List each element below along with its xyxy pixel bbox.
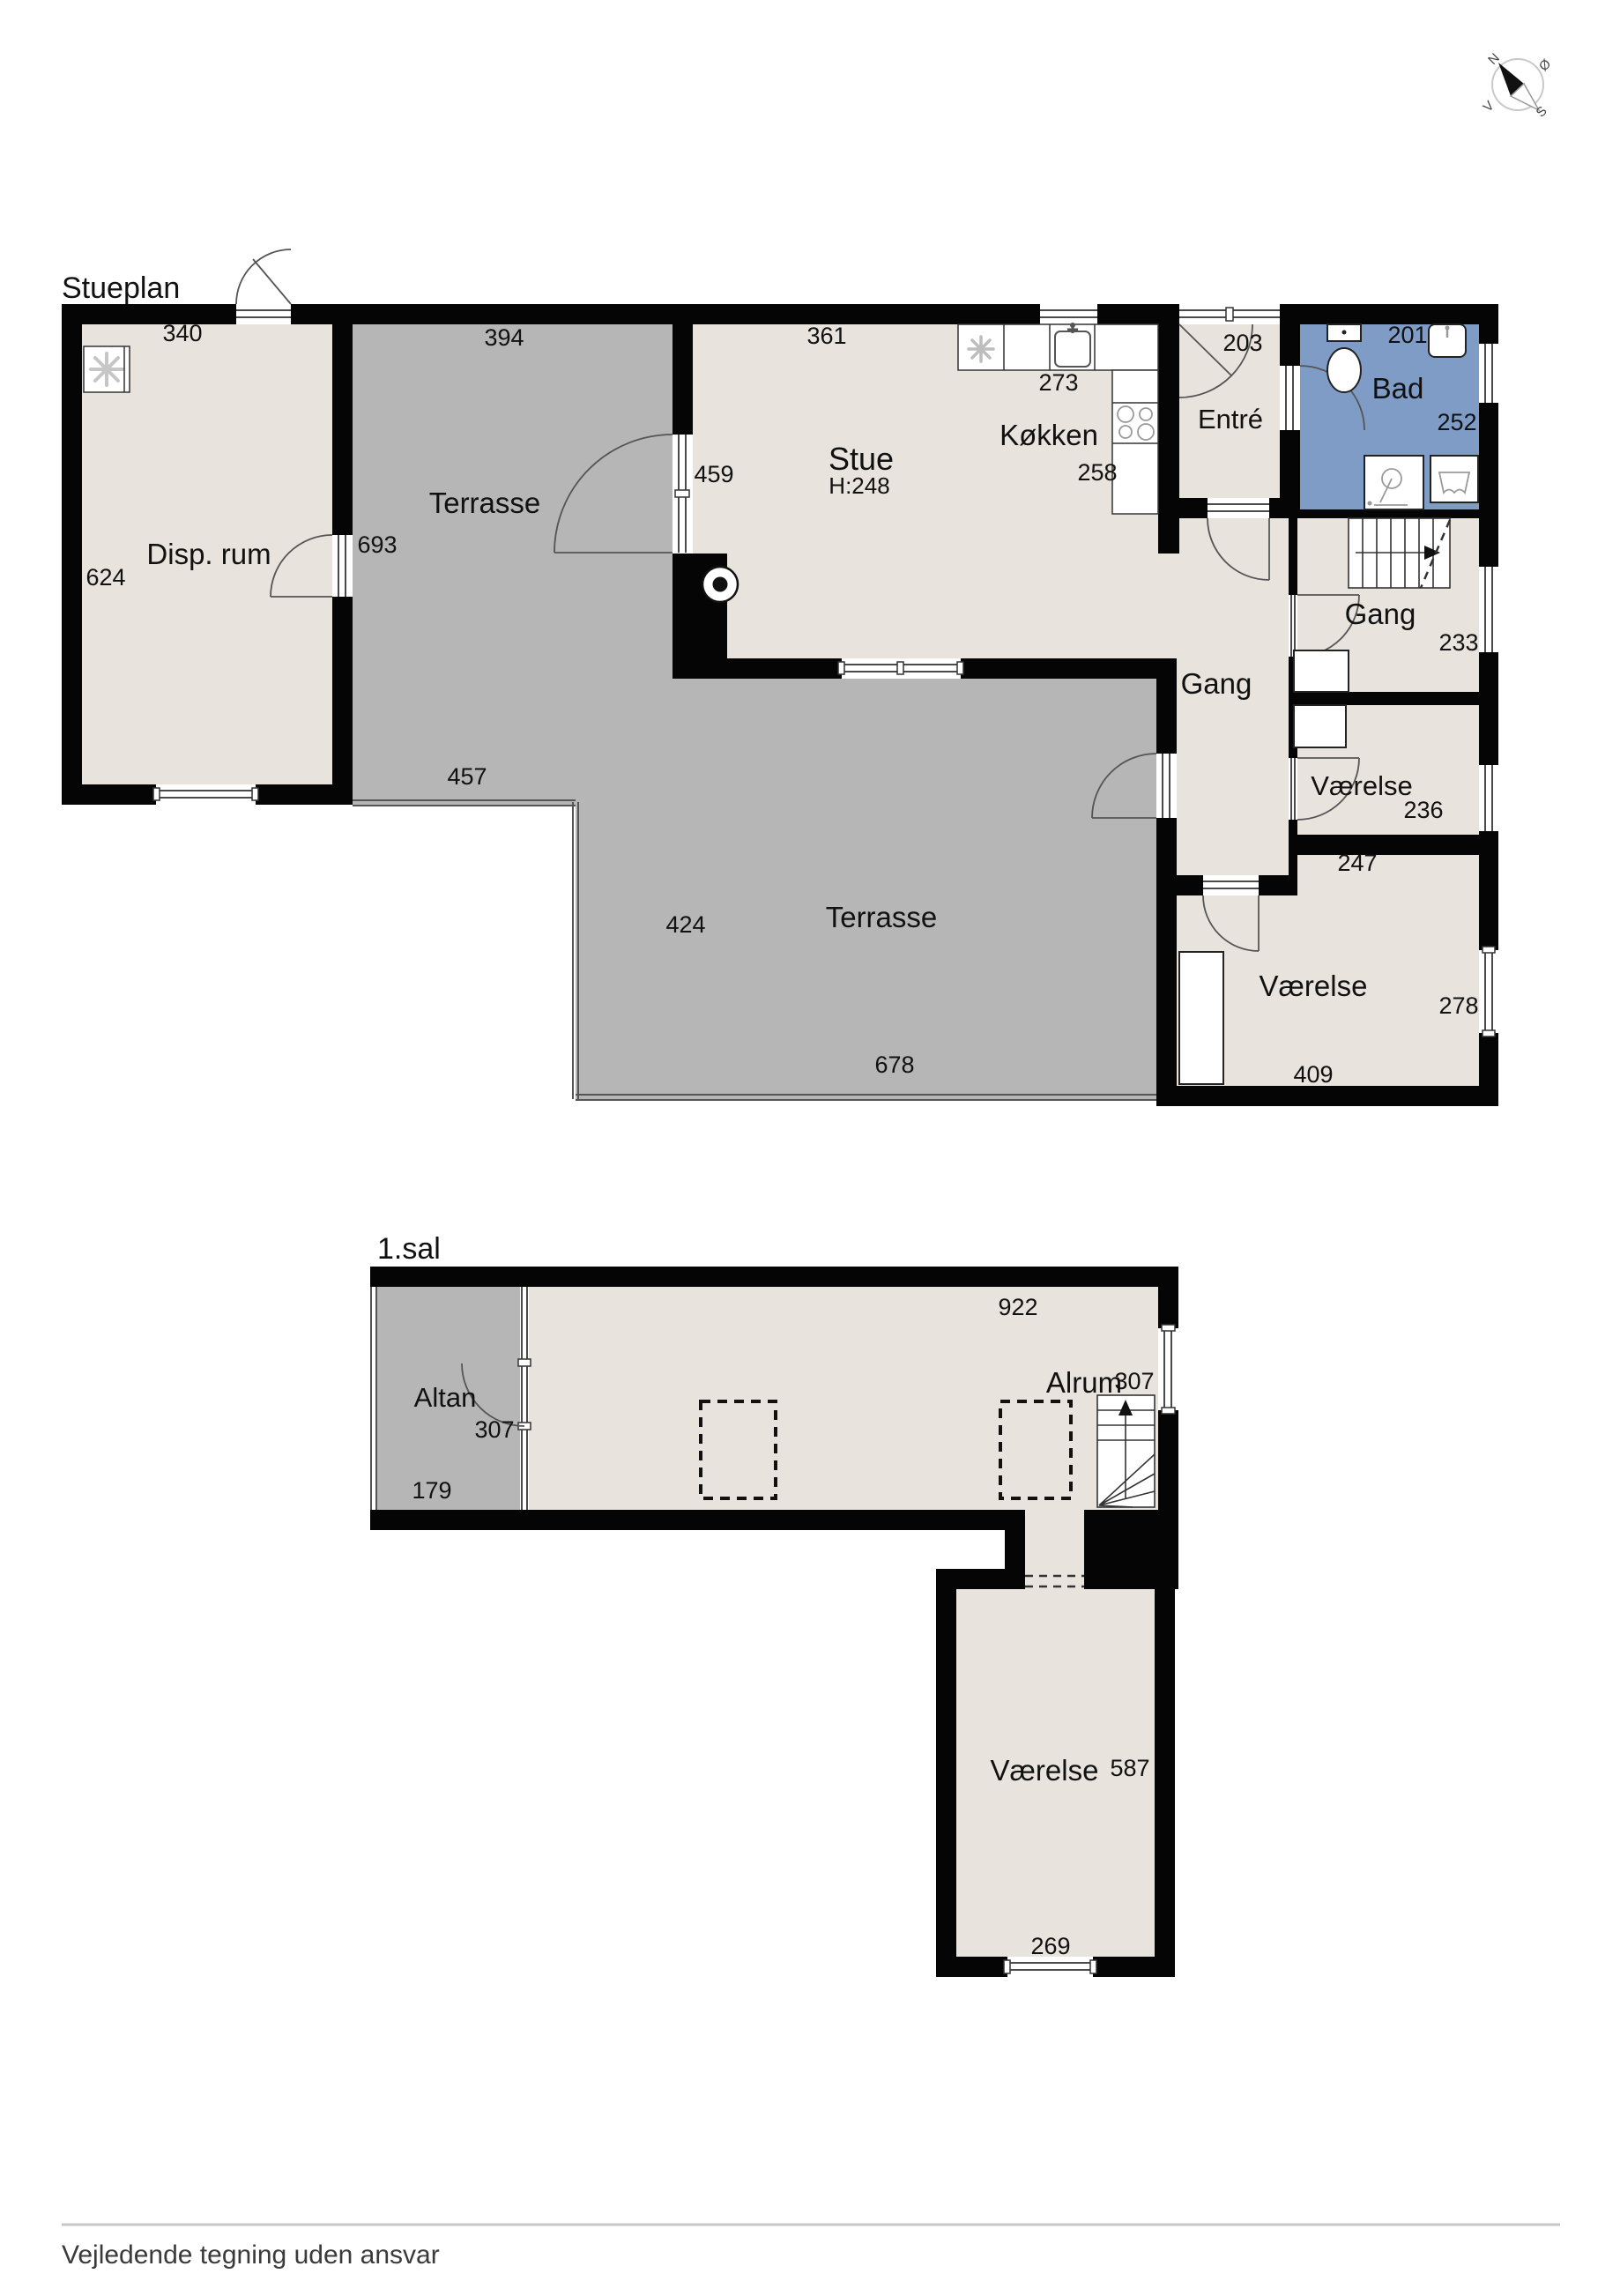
footer: Vejledende tegning uden ansvar bbox=[62, 2225, 1560, 2270]
window-gang-right bbox=[1479, 567, 1498, 652]
dim-entre-203: 203 bbox=[1222, 330, 1262, 356]
room-label-kokken: Køkken bbox=[999, 419, 1098, 451]
dim-alrum-307: 307 bbox=[1114, 1368, 1154, 1394]
door-disp-rum-exterior bbox=[236, 249, 291, 324]
footer-disclaimer: Vejledende tegning uden ansvar bbox=[62, 2240, 440, 2270]
room-label-terrasse-upper: Terrasse bbox=[429, 487, 541, 519]
ground-floor-title: Stueplan bbox=[62, 271, 180, 305]
corridor-floor bbox=[1025, 1510, 1084, 1589]
window-vaerelse1-right bbox=[1479, 765, 1498, 831]
room-label-terrasse-lower: Terrasse bbox=[826, 901, 938, 933]
freezer-icon bbox=[969, 337, 993, 361]
window-disp-rum-bottom bbox=[153, 784, 258, 805]
room-label-entre: Entré bbox=[1198, 404, 1263, 435]
room-label-vaerelse-first: Værelse bbox=[991, 1754, 1099, 1787]
dim-terrasse-457: 457 bbox=[447, 763, 487, 790]
room-label-vaerelse2: Værelse bbox=[1260, 970, 1368, 1002]
room-label-stue: Stue bbox=[829, 441, 894, 477]
closet-vaerelse1 bbox=[1294, 705, 1346, 747]
vaerelse2-floor-upper bbox=[1297, 855, 1479, 895]
compass-rose: N Ø S V bbox=[1481, 50, 1555, 120]
stairs-ground bbox=[1349, 518, 1450, 588]
stairs-first bbox=[1097, 1395, 1155, 1507]
dim-terrasse-424: 424 bbox=[665, 911, 705, 938]
dim-terrasse-394: 394 bbox=[484, 324, 524, 351]
washbasin-icon bbox=[1429, 324, 1466, 357]
room-label-vaerelse1: Værelse bbox=[1311, 770, 1412, 801]
dim-vaerelse-587: 587 bbox=[1110, 1755, 1149, 1781]
dim-altan-179: 179 bbox=[412, 1477, 451, 1504]
dim-stue-459: 459 bbox=[694, 461, 733, 487]
altan-railing bbox=[371, 1287, 376, 1510]
window-vaerelse-first-bottom bbox=[1004, 1957, 1096, 1977]
room-label-gang-right: Gang bbox=[1345, 598, 1416, 630]
dim-disp-rum-624: 624 bbox=[85, 564, 125, 591]
compass-label-v: V bbox=[1481, 99, 1497, 115]
dim-gang-233: 233 bbox=[1438, 629, 1478, 656]
dim-bad-201: 201 bbox=[1387, 322, 1427, 348]
fridge-icon bbox=[84, 346, 130, 392]
dim-vaerelse2-278: 278 bbox=[1438, 992, 1478, 1019]
dim-altan-307: 307 bbox=[474, 1416, 514, 1443]
dim-terrasse-678: 678 bbox=[874, 1051, 914, 1078]
window-bad-right bbox=[1479, 344, 1498, 403]
dim-kokken-273: 273 bbox=[1038, 369, 1078, 396]
first-floor-plan: 1.sal bbox=[370, 1232, 1178, 1977]
dim-alrum-922: 922 bbox=[998, 1294, 1037, 1320]
dim-kokken-258: 258 bbox=[1077, 459, 1117, 486]
closet-gang bbox=[1294, 650, 1349, 692]
window-kokken-top bbox=[1040, 304, 1097, 324]
dim-vaerelse2-409: 409 bbox=[1293, 1061, 1333, 1088]
first-floor-title: 1.sal bbox=[377, 1232, 441, 1266]
dim-vaerelse-269: 269 bbox=[1030, 1933, 1070, 1959]
shower-icon bbox=[1364, 456, 1423, 509]
room-label-gang-mid: Gang bbox=[1181, 667, 1252, 700]
dim-bad-252: 252 bbox=[1437, 409, 1476, 435]
toilet-icon bbox=[1327, 324, 1361, 392]
window-stue-bottom bbox=[838, 658, 963, 679]
fireplace-icon bbox=[702, 567, 738, 602]
window-alrum-right bbox=[1158, 1325, 1178, 1414]
dim-terrasse-693: 693 bbox=[357, 531, 397, 558]
floorplan-page: N Ø S V Stueplan bbox=[0, 0, 1620, 2292]
window-vaerelse2-right bbox=[1479, 947, 1498, 1037]
dim-vaerelse1-247: 247 bbox=[1337, 850, 1377, 876]
dim-disp-rum-340: 340 bbox=[162, 320, 202, 346]
room-label-bad: Bad bbox=[1372, 372, 1424, 405]
towel-icon bbox=[1431, 456, 1478, 502]
room-label-disp-rum: Disp. rum bbox=[146, 538, 271, 570]
room-label-alrum: Alrum bbox=[1046, 1366, 1122, 1399]
gang-mid-floor bbox=[1177, 518, 1289, 895]
floorplan-drawing: N Ø S V Stueplan bbox=[0, 0, 1620, 2292]
compass-label-s: S bbox=[1534, 104, 1550, 121]
window-entre-entrance-band bbox=[1179, 304, 1280, 324]
stue-ceiling-height: H:248 bbox=[829, 472, 889, 499]
dim-stue-361: 361 bbox=[806, 323, 846, 349]
stue-floor bbox=[693, 324, 1179, 658]
wardrobe-vaerelse2 bbox=[1179, 952, 1223, 1084]
ground-floor-plan: Stueplan bbox=[62, 249, 1498, 1106]
room-label-altan: Altan bbox=[414, 1382, 477, 1413]
dim-vaerelse1-236: 236 bbox=[1403, 797, 1443, 823]
